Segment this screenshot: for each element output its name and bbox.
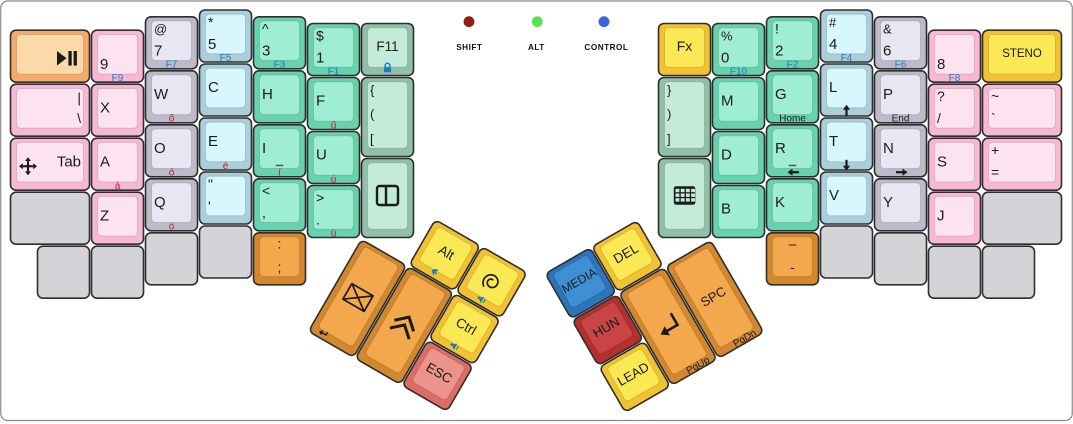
- svg-text:8: 8: [937, 56, 945, 73]
- svg-text:F2: F2: [787, 60, 799, 71]
- svg-text:M: M: [721, 93, 734, 110]
- svg-text:V: V: [829, 187, 839, 204]
- svg-text:Q: Q: [154, 194, 166, 211]
- svg-text:F11: F11: [376, 39, 398, 54]
- svg-text:~: ~: [991, 88, 999, 104]
- svg-text:!: !: [775, 21, 779, 37]
- svg-text:N: N: [883, 140, 894, 157]
- svg-text:D: D: [721, 147, 732, 164]
- svg-text:L: L: [829, 79, 837, 96]
- svg-text:F9: F9: [112, 73, 124, 84]
- svg-text:A: A: [100, 153, 110, 170]
- svg-text:Home: Home: [779, 114, 806, 125]
- svg-text:/: /: [937, 110, 941, 126]
- svg-text:&: &: [883, 22, 892, 37]
- svg-text:@: @: [154, 22, 167, 37]
- svg-text:Tab: Tab: [57, 153, 81, 170]
- svg-text:–: –: [789, 236, 797, 252]
- svg-text:P: P: [883, 86, 893, 103]
- svg-text:X: X: [100, 100, 110, 117]
- svg-text:F7: F7: [166, 60, 178, 71]
- svg-text:K: K: [775, 194, 785, 211]
- svg-text:`: `: [991, 110, 996, 126]
- svg-text:ú: ú: [331, 174, 337, 185]
- svg-text:F10: F10: [730, 66, 748, 77]
- svg-text:[: [: [370, 131, 374, 146]
- svg-text:F8: F8: [949, 73, 961, 84]
- svg-text:E: E: [208, 133, 218, 150]
- svg-text:Y: Y: [883, 194, 893, 211]
- svg-text:J: J: [937, 207, 945, 224]
- svg-text:$: $: [316, 27, 324, 43]
- svg-text:\: \: [77, 110, 81, 126]
- svg-text:3: 3: [262, 43, 270, 60]
- svg-text:?: ?: [937, 88, 945, 104]
- svg-text:": ": [208, 176, 213, 192]
- svg-text:R: R: [775, 140, 786, 157]
- svg-text:S: S: [937, 153, 947, 170]
- svg-text:9: 9: [100, 56, 108, 73]
- svg-text:+: +: [991, 142, 999, 158]
- svg-text:F4: F4: [841, 53, 853, 64]
- svg-text:STENO: STENO: [1002, 48, 1042, 60]
- svg-text:<: <: [262, 183, 270, 199]
- svg-text:.: .: [316, 211, 320, 227]
- svg-text:ő: ő: [169, 114, 175, 125]
- svg-text:B: B: [721, 201, 731, 218]
- svg-text:Z: Z: [100, 207, 109, 224]
- svg-text:í: í: [278, 168, 281, 179]
- svg-text:=: =: [991, 164, 999, 180]
- svg-text:5: 5: [208, 36, 216, 53]
- svg-text:F: F: [316, 93, 325, 110]
- svg-text:): ): [667, 107, 671, 122]
- svg-text:O: O: [154, 140, 166, 157]
- svg-text:6: 6: [883, 43, 891, 60]
- svg-text:{: {: [370, 82, 375, 97]
- svg-text:]: ]: [667, 131, 671, 146]
- svg-text:Fx: Fx: [677, 38, 693, 54]
- svg-text:|: |: [77, 90, 81, 106]
- svg-text:F1: F1: [328, 66, 340, 77]
- svg-text:(: (: [370, 107, 375, 122]
- svg-text:SHIFT: SHIFT: [456, 43, 482, 52]
- svg-text:End: End: [892, 114, 910, 125]
- svg-text:ü: ü: [331, 228, 337, 239]
- svg-text:-: -: [790, 259, 795, 275]
- svg-text:>: >: [316, 189, 324, 205]
- svg-text:I: I: [262, 140, 266, 157]
- svg-text:W: W: [154, 86, 169, 103]
- svg-text:%: %: [721, 28, 733, 43]
- svg-text:U: U: [316, 147, 327, 164]
- svg-text:': ': [208, 198, 211, 214]
- svg-text:é: é: [223, 161, 229, 172]
- svg-text:#: #: [829, 15, 837, 30]
- svg-text:ű: ű: [331, 120, 337, 131]
- svg-text:2: 2: [775, 43, 783, 60]
- svg-text:G: G: [775, 86, 787, 103]
- svg-text:F6: F6: [895, 60, 907, 71]
- svg-text::: :: [278, 236, 282, 252]
- svg-text:á: á: [115, 181, 121, 192]
- svg-text:0: 0: [721, 49, 729, 66]
- svg-text:C: C: [208, 79, 219, 96]
- svg-text:ó: ó: [169, 168, 175, 179]
- svg-text:,: ,: [262, 205, 266, 221]
- svg-text:CONTROL: CONTROL: [584, 43, 628, 52]
- svg-text:ö: ö: [169, 222, 175, 233]
- svg-text:1: 1: [316, 49, 324, 66]
- svg-text:T: T: [829, 133, 838, 150]
- svg-text:*: *: [208, 14, 214, 30]
- svg-text:F5: F5: [220, 53, 232, 64]
- svg-text:4: 4: [829, 36, 837, 53]
- svg-text:H: H: [262, 86, 273, 103]
- svg-text:ALT: ALT: [528, 43, 545, 52]
- svg-text:}: }: [667, 82, 672, 97]
- svg-text:^: ^: [262, 21, 269, 37]
- svg-text:7: 7: [154, 43, 162, 60]
- svg-text:F3: F3: [274, 60, 286, 71]
- svg-text:;: ;: [278, 259, 282, 275]
